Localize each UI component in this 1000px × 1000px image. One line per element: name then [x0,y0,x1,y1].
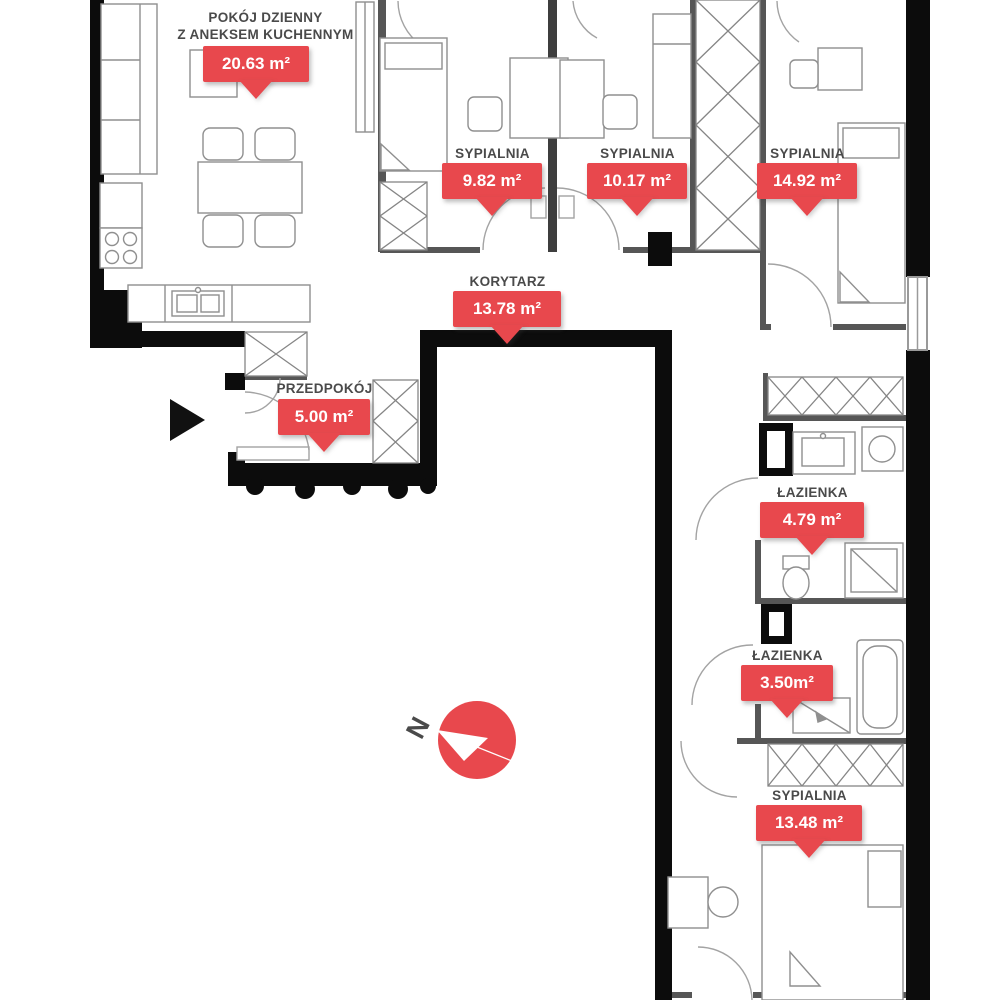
area-value: 20.63 m² [203,46,309,82]
wardrobe-row-bath-hall [768,377,903,415]
area-badge-bedroom-4: 13.48 m² [756,805,862,841]
area-value: 9.82 m² [442,163,542,199]
room-label-bathroom-1: ŁAZIENKA [745,485,880,502]
dining-set [198,128,302,247]
room-label-bedroom-3: SYPIALNIA [740,146,875,163]
shower-1 [845,543,903,598]
kitchen-counter-left [100,183,142,228]
desk-3 [818,48,862,90]
room-label-bedroom-1: SYPIALNIA [425,146,560,163]
washing-machine [862,427,903,471]
area-value: 13.48 m² [756,805,862,841]
bed-2 [653,14,691,138]
room-label-bathroom-2: ŁAZIENKA [720,648,855,665]
area-badge-bathroom-2: 3.50m² [741,665,833,701]
room-label-bedroom-4: SYPIALNIA [742,788,877,805]
chair-2 [603,95,637,129]
room-label-entrance-hall: PRZEDPOKÓJ [252,381,397,398]
area-value: 4.79 m² [760,502,864,538]
room-label-bedroom-2: SYPIALNIA [570,146,705,163]
desk-4 [668,877,708,928]
wardrobe-row-bedroom-4 [768,744,903,786]
floor-plan: N POKÓJ DZIENNY Z ANEKSEM KUCHENNYM SYPI… [0,0,1000,1000]
bathroom1-sink [793,432,855,474]
desk-1 [510,58,568,138]
area-value: 3.50m² [741,665,833,701]
area-value: 10.17 m² [587,163,687,199]
wardrobe-bedroom-1 [380,182,427,250]
desk-2 [560,60,604,138]
badge-pointer [239,80,273,99]
area-badge-bedroom-3: 14.92 m² [757,163,857,199]
chair-3 [790,60,818,88]
chair-1 [468,97,502,131]
area-badge-living: 20.63 m² [203,46,309,82]
area-badge-entrance-hall: 5.00 m² [278,399,370,435]
window-right [908,277,927,350]
toilet [783,556,809,599]
kitchen-counter-bottom [128,285,310,322]
stove [100,228,142,268]
area-badge-bedroom-1: 9.82 m² [442,163,542,199]
area-badge-bedroom-2: 10.17 m² [587,163,687,199]
room-label-corridor: KORYTARZ [440,274,575,291]
room-label-living: POKÓJ DZIENNY Z ANEKSEM KUCHENNYM [158,10,373,43]
entrance-arrow [170,399,205,441]
badge-pointer [795,536,829,555]
bed-4 [762,845,903,1000]
badge-pointer [490,325,524,344]
area-value: 13.78 m² [453,291,561,327]
area-badge-corridor: 13.78 m² [453,291,561,327]
compass-north-label: N [400,712,436,743]
badge-pointer [770,699,804,718]
badge-pointer [475,197,509,216]
compass: N [400,701,517,779]
wardrobe-column [696,0,760,250]
badge-pointer [307,433,341,452]
wardrobe-hall-left [245,332,307,376]
bathtub [857,640,903,734]
badge-pointer [792,839,826,858]
area-value: 5.00 m² [278,399,370,435]
area-badge-bathroom-1: 4.79 m² [760,502,864,538]
sofa [101,4,157,174]
badge-pointer [620,197,654,216]
badge-pointer [790,197,824,216]
chair-4 [708,887,738,917]
area-value: 14.92 m² [757,163,857,199]
